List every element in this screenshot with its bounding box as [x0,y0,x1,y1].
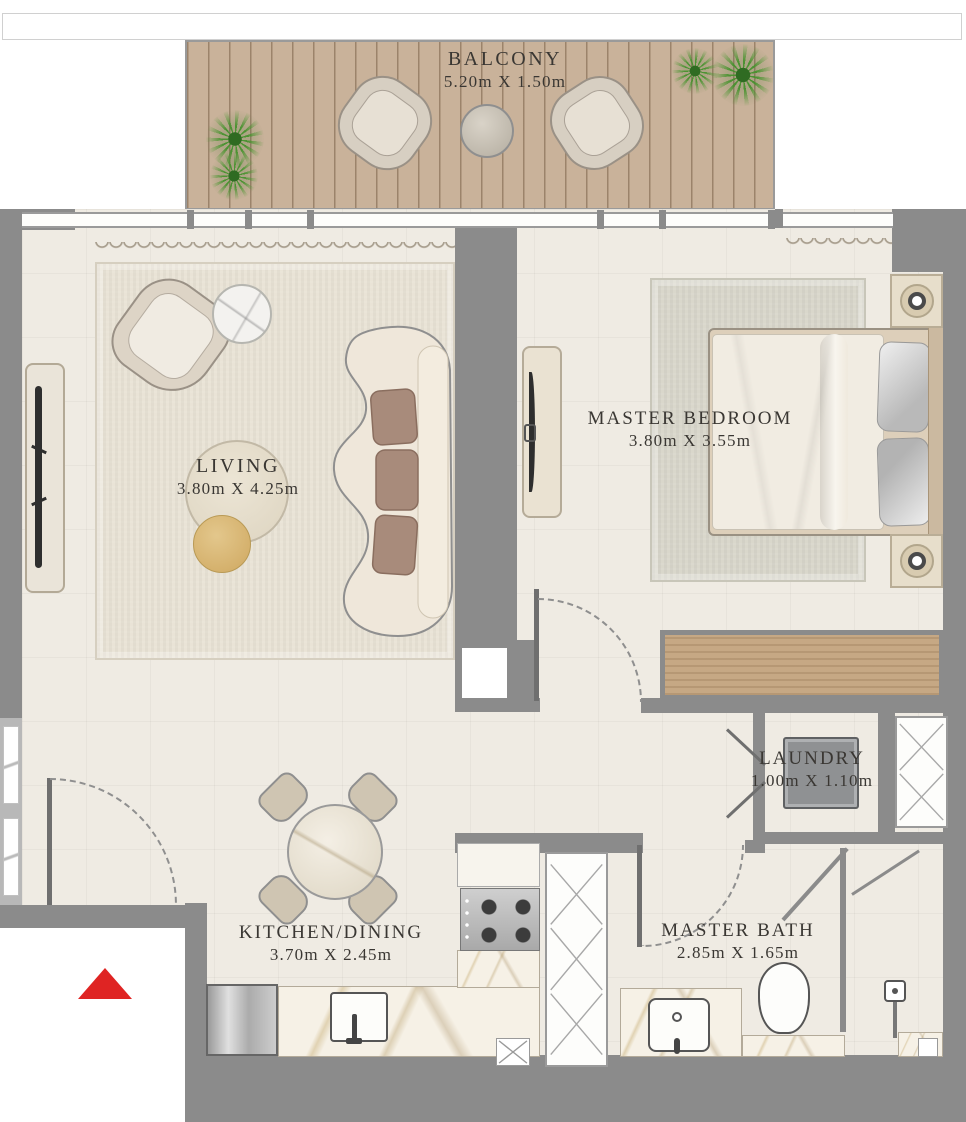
room-name: KITCHEN/DINING [239,922,423,944]
master-bath-label: MASTER BATH 2.85m X 1.65m [661,920,814,963]
wall-living-bedroom-divider [455,228,517,698]
wall-niche [462,648,507,701]
room-dims: 2.85m X 1.65m [661,943,814,963]
nightstand [890,274,943,328]
balcony-label: BALCONY 5.20m X 1.50m [444,48,566,92]
plant-icon [210,152,258,200]
room-dims: 3.70m X 2.45m [239,945,423,965]
door-jamb [187,210,194,229]
wall-bottom-left [0,905,185,928]
balcony-round-table [460,104,514,158]
door-jamb [245,210,252,229]
pouf [193,515,251,573]
kitchen-faucet-base [346,1038,362,1044]
kitchen-sink [330,992,388,1042]
room-dims: 1.00m X 1.10m [751,771,873,791]
wall-corridor-a [455,698,540,712]
living-label: LIVING 3.80m X 4.25m [177,455,299,499]
closet-shaft [895,716,948,828]
building-edge-lines [2,13,962,40]
lamp-icon [900,544,934,578]
living-window [22,212,187,228]
pillow [876,437,931,527]
kitchen-counter-right [457,950,540,988]
toilet-icon [758,962,810,1034]
room-name: MASTER BATH [661,920,814,942]
wall-corridor-b [641,698,943,713]
room-dims: 5.20m X 1.50m [444,72,566,92]
chair-cushion [557,83,637,163]
tv-icon [35,386,42,568]
duct-shaft [545,852,608,1067]
door-jamb [597,210,604,229]
plant-icon [712,44,774,106]
lamp-icon [900,284,934,318]
wall-kitchen-left [185,903,207,1055]
wall-right [943,209,966,1122]
outside-area [0,928,185,1122]
bedroom-dresser [660,630,944,700]
bath-faucet [674,1038,680,1054]
shower-control-dot [892,988,898,994]
wall-left [0,209,22,718]
headboard [928,324,944,540]
room-name: LAUNDRY [751,748,873,770]
pillow [876,341,931,433]
bath-floor-marble [742,1035,845,1057]
bedroom-window [783,212,893,228]
door-jamb [768,210,775,229]
kitchen-counter-top [457,843,540,887]
kitchen-faucet [352,1014,357,1040]
dining-table [287,804,383,900]
plant-icon [672,48,718,94]
room-dims: 3.80m X 4.25m [177,479,299,499]
armchair-cushion [120,285,222,387]
wall-laundry-right [878,712,895,834]
curved-sofa [316,322,458,642]
entry-door-panel [3,818,19,896]
room-name: LIVING [177,455,299,478]
duvet-fold [820,334,848,530]
living-tv-console [25,363,65,593]
side-table [212,284,272,344]
shower-pipe [893,1002,897,1038]
shower-drain [918,1038,938,1057]
kitchen-dining-label: KITCHEN/DINING 3.70m X 2.45m [239,922,423,965]
wall-balcony-pier [775,209,783,228]
shaft-small [496,1038,530,1066]
stove-icon [460,888,540,951]
door-jamb [659,210,666,229]
wall-laundry-bottom [753,832,966,844]
room-name: BALCONY [444,48,566,71]
entry-arrow-icon [78,968,132,999]
curtain-line [95,242,455,250]
master-bedroom-label: MASTER BEDROOM 3.80m X 3.55m [588,408,793,451]
bath-sink-drain [672,1012,682,1022]
room-dims: 3.80m X 3.55m [588,431,793,451]
chair-cushion [344,82,425,163]
wall-shower-divider [840,848,846,1032]
entry-door-panel [3,726,19,804]
balcony-sliding-door [187,212,775,228]
laundry-label: LAUNDRY 1.00m X 1.10m [751,748,873,791]
floor-plan: BALCONY 5.20m X 1.50m LIVING 3.80m X 4.2… [0,0,966,1122]
room-name: MASTER BEDROOM [588,408,793,430]
tv-bracket [524,424,536,442]
fridge-icon [206,984,278,1056]
nightstand [890,534,943,588]
door-jamb [307,210,314,229]
